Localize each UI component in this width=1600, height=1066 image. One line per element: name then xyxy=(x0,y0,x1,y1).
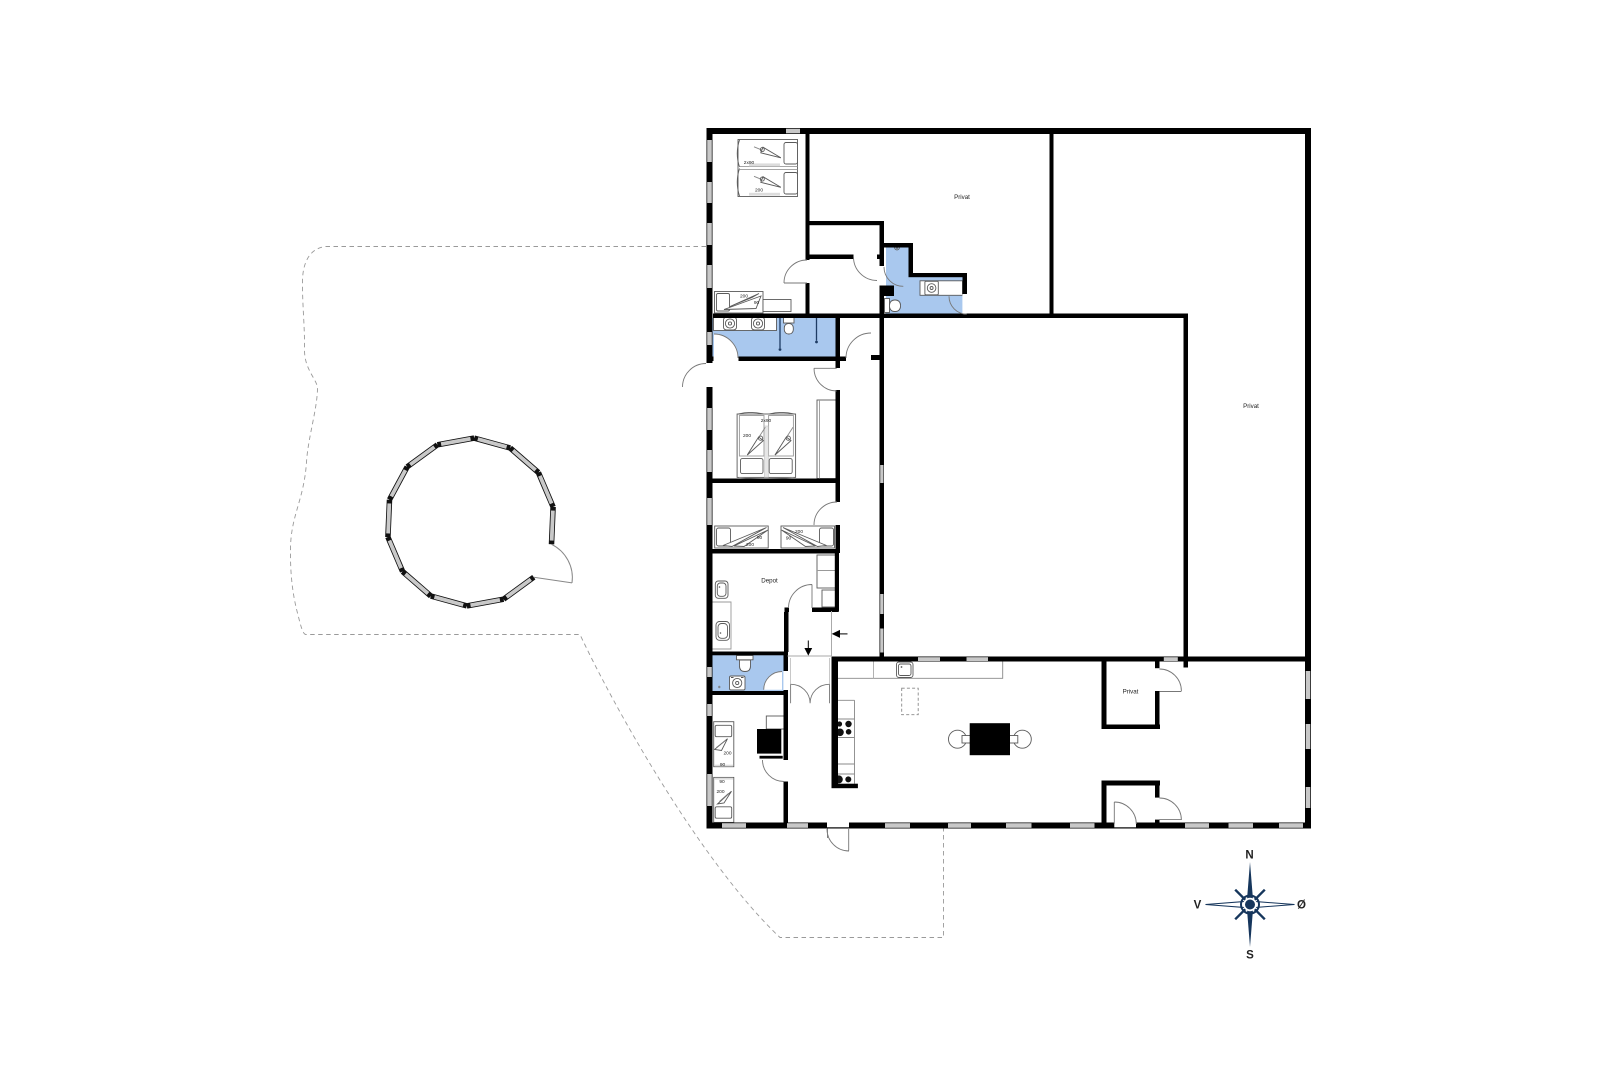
svg-text:Depot: Depot xyxy=(761,578,778,585)
svg-text:90: 90 xyxy=(786,536,792,542)
svg-text:90: 90 xyxy=(720,762,726,768)
svg-text:S: S xyxy=(1246,950,1254,962)
svg-text:90: 90 xyxy=(719,779,725,785)
svg-text:Privat: Privat xyxy=(954,194,970,201)
svg-text:200: 200 xyxy=(723,751,731,757)
svg-text:200: 200 xyxy=(795,529,803,535)
svg-text:Privat: Privat xyxy=(1123,689,1139,696)
svg-text:2x90: 2x90 xyxy=(744,160,755,166)
svg-text:200: 200 xyxy=(716,789,724,795)
svg-text:Ø: Ø xyxy=(1297,900,1306,912)
svg-text:200: 200 xyxy=(746,542,754,548)
svg-text:2x90: 2x90 xyxy=(761,418,772,424)
svg-text:N: N xyxy=(1245,850,1253,862)
svg-text:Privat: Privat xyxy=(1243,403,1259,410)
svg-text:90: 90 xyxy=(754,300,760,306)
svg-text:V: V xyxy=(1194,900,1202,912)
svg-text:200: 200 xyxy=(740,294,748,300)
svg-text:200: 200 xyxy=(743,433,751,439)
svg-text:90: 90 xyxy=(757,535,763,541)
svg-text:200: 200 xyxy=(755,188,763,194)
